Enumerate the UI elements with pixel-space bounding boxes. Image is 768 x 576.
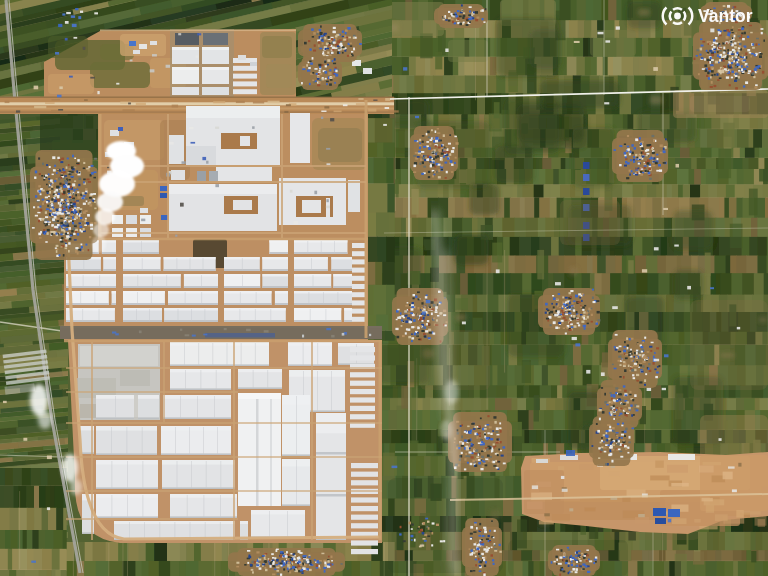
- svg-text:Vantor: Vantor: [698, 6, 753, 26]
